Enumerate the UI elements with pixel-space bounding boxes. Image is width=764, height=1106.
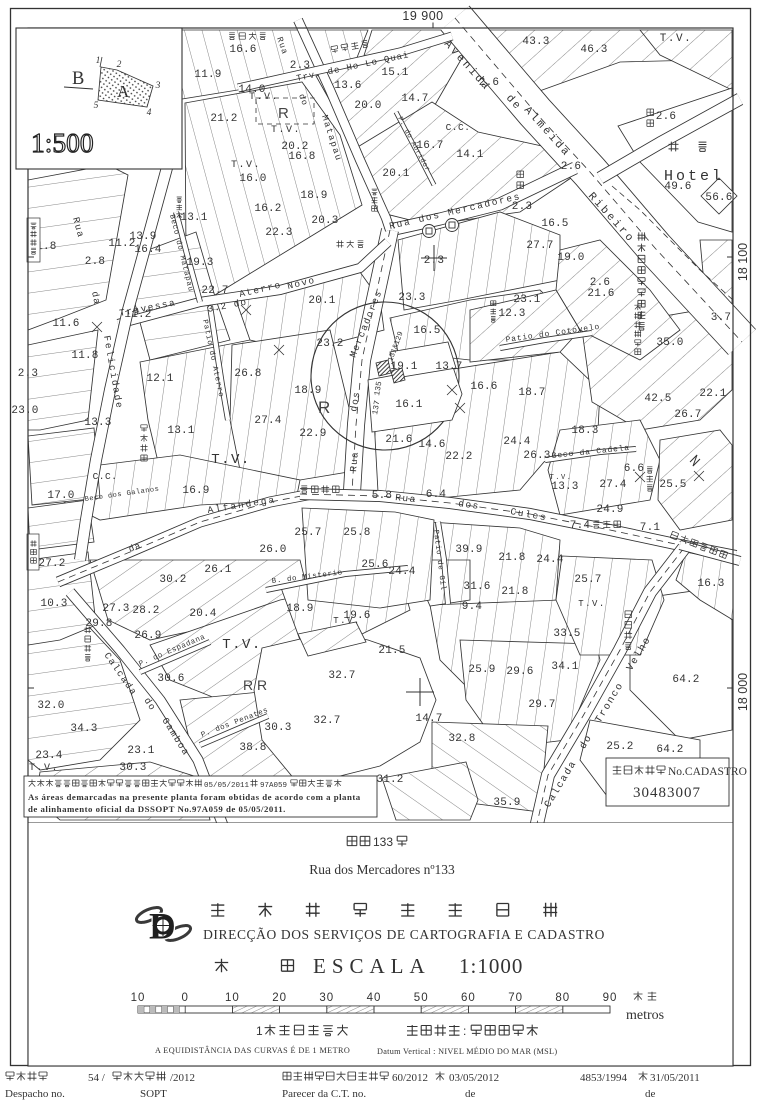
svg-text:16.8: 16.8 (288, 151, 315, 163)
svg-text:14.1: 14.1 (456, 149, 483, 161)
svg-text:13.3: 13.3 (84, 417, 111, 429)
svg-text:14.7: 14.7 (415, 713, 442, 725)
svg-text:54 /: 54 / (88, 1072, 106, 1084)
svg-text:No.CADASTRO: No.CADASTRO (668, 766, 747, 778)
svg-text:35.0: 35.0 (656, 337, 683, 349)
svg-text:ESCALA: ESCALA (313, 954, 431, 978)
svg-text:T.V.: T.V. (29, 763, 59, 774)
svg-text:32.7: 32.7 (313, 715, 340, 727)
svg-text:1:1000: 1:1000 (459, 954, 523, 978)
svg-text:05/05/2011: 05/05/2011 (204, 782, 250, 790)
svg-text:11.8: 11.8 (71, 350, 98, 362)
svg-text:18.9: 18.9 (300, 190, 327, 202)
svg-text:23.3: 23.3 (398, 292, 425, 304)
svg-text:19 900: 19 900 (402, 9, 443, 23)
svg-text::: : (463, 1024, 466, 1038)
svg-text:Datum Vertical : NIVEL MÉDIO D: Datum Vertical : NIVEL MÉDIO DO MAR (MSL… (377, 1046, 557, 1056)
svg-text:90: 90 (603, 992, 618, 1004)
svg-text:20: 20 (272, 992, 287, 1004)
svg-text:T.V.: T.V. (231, 160, 261, 171)
svg-text:3: 3 (155, 81, 161, 91)
svg-text:9.4: 9.4 (462, 601, 483, 613)
svg-text:31.6: 31.6 (463, 581, 490, 593)
svg-text:18.9: 18.9 (286, 603, 313, 615)
svg-text:T.V.: T.V. (333, 616, 361, 626)
svg-text:20.1: 20.1 (382, 168, 409, 180)
svg-text:22.7: 22.7 (201, 285, 228, 297)
svg-text:24.4: 24.4 (536, 554, 563, 566)
svg-text:38.8: 38.8 (239, 742, 266, 754)
svg-text:25.7: 25.7 (574, 574, 601, 586)
svg-text:6.6: 6.6 (624, 463, 644, 475)
svg-text:32.8: 32.8 (448, 733, 475, 745)
svg-text:13.1: 13.1 (167, 425, 194, 437)
svg-text:21.8: 21.8 (501, 586, 528, 598)
svg-text:39.9: 39.9 (455, 544, 482, 556)
svg-text:21.6: 21.6 (587, 288, 614, 300)
svg-text:C.C.: C.C. (93, 471, 118, 482)
svg-text:de: de (465, 1088, 476, 1100)
svg-text:2.8: 2.8 (85, 256, 105, 268)
svg-text:1:500: 1:500 (31, 127, 94, 158)
svg-text:3.7: 3.7 (711, 312, 731, 324)
svg-text:23.1: 23.1 (127, 745, 154, 757)
svg-text:T.V.: T.V. (249, 92, 279, 103)
svg-text:25.7: 25.7 (294, 527, 321, 539)
svg-text:16.5: 16.5 (413, 325, 440, 337)
svg-text:26.0: 26.0 (259, 544, 286, 556)
svg-text:15.1: 15.1 (381, 67, 408, 79)
svg-text:43.3: 43.3 (522, 36, 549, 48)
svg-text:30483007: 30483007 (633, 785, 701, 801)
svg-text:16.5: 16.5 (541, 218, 568, 230)
svg-text:2.3: 2.3 (290, 60, 310, 72)
svg-text:R: R (278, 105, 289, 122)
svg-text:22.1: 22.1 (699, 388, 726, 400)
svg-text:16.0: 16.0 (239, 173, 266, 185)
svg-text:12.1: 12.1 (146, 373, 173, 385)
svg-text:30.6: 30.6 (157, 673, 184, 685)
svg-text:Rua dos Mercadores nº133: Rua dos Mercadores nº133 (309, 862, 455, 877)
svg-text:B: B (72, 69, 84, 89)
svg-text:16.4: 16.4 (134, 244, 161, 256)
svg-text:18.7: 18.7 (518, 387, 545, 399)
svg-text:26.1: 26.1 (204, 564, 231, 576)
svg-text:13.6: 13.6 (334, 80, 361, 92)
svg-text:18.9: 18.9 (294, 385, 321, 397)
svg-text:24.4: 24.4 (503, 436, 530, 448)
svg-text:13.7: 13.7 (435, 361, 462, 373)
svg-text:26.8: 26.8 (234, 368, 261, 380)
svg-text:16.6: 16.6 (229, 44, 256, 56)
svg-text:T.V.: T.V. (271, 125, 301, 136)
svg-text:10.3: 10.3 (40, 598, 67, 610)
svg-text:19.3: 19.3 (186, 257, 213, 269)
svg-text:34.3: 34.3 (70, 723, 97, 735)
svg-text:32.7: 32.7 (328, 670, 355, 682)
svg-text:A EQUIDISTÂNCIA DAS CURVAS É D: A EQUIDISTÂNCIA DAS CURVAS É DE 1 METRO (155, 1045, 350, 1055)
svg-text:24.4: 24.4 (388, 566, 415, 578)
svg-text:64.2: 64.2 (656, 744, 683, 756)
svg-text:25.5: 25.5 (659, 479, 686, 491)
svg-text:2: 2 (117, 60, 122, 70)
svg-text:70: 70 (508, 992, 523, 1004)
svg-text:26.9: 26.9 (134, 630, 161, 642)
svg-text:13.3: 13.3 (551, 481, 578, 493)
svg-text:16.2: 16.2 (254, 203, 281, 215)
svg-text:28.2: 28.2 (132, 605, 159, 617)
svg-text:T.V.: T.V. (222, 637, 262, 653)
svg-text:33.5: 33.5 (553, 628, 580, 640)
svg-text:18 100: 18 100 (736, 243, 750, 281)
svg-text:25.2: 25.2 (606, 741, 633, 753)
svg-text:23.1: 23.1 (513, 294, 540, 306)
svg-text:27.4: 27.4 (254, 415, 281, 427)
svg-text:5.8: 5.8 (372, 490, 392, 502)
svg-text:R: R (318, 398, 330, 417)
svg-text:C.C.: C.C. (446, 122, 471, 133)
svg-text:22.2: 22.2 (445, 451, 472, 463)
svg-text:32.0: 32.0 (37, 700, 64, 712)
svg-text:SOPT: SOPT (140, 1088, 167, 1100)
svg-text:18.3: 18.3 (571, 425, 598, 437)
svg-text:6.4: 6.4 (426, 489, 447, 501)
svg-text:13.1: 13.1 (180, 212, 207, 224)
svg-text:40: 40 (367, 992, 382, 1004)
svg-text:2.6: 2.6 (656, 111, 676, 123)
svg-text:56.6: 56.6 (705, 192, 732, 204)
svg-text:03/05/2012: 03/05/2012 (449, 1072, 499, 1084)
svg-text:64.2: 64.2 (672, 674, 699, 686)
svg-text:2.3: 2.3 (424, 255, 444, 267)
svg-text:de: de (645, 1088, 656, 1100)
svg-text:60/2012: 60/2012 (392, 1072, 428, 1084)
svg-text:27.7: 27.7 (526, 240, 553, 252)
svg-text:12.3: 12.3 (498, 308, 525, 320)
svg-text:R R: R R (243, 677, 267, 693)
svg-text:34.1: 34.1 (551, 661, 578, 673)
svg-text:133: 133 (373, 835, 393, 849)
svg-text:T.V.: T.V. (578, 599, 606, 609)
svg-text:23.2: 23.2 (316, 338, 343, 350)
svg-text:10: 10 (131, 992, 146, 1004)
svg-text:Parecer da C.T. no.: Parecer da C.T. no. (282, 1088, 366, 1100)
svg-text:42.5: 42.5 (644, 393, 671, 405)
svg-text:21.5: 21.5 (378, 645, 405, 657)
svg-text:1: 1 (96, 56, 101, 66)
svg-text:25.8: 25.8 (343, 527, 370, 539)
svg-text:80: 80 (555, 992, 570, 1004)
svg-text:26.3: 26.3 (523, 450, 550, 462)
svg-text:60: 60 (461, 992, 476, 1004)
svg-text:25.6: 25.6 (361, 559, 388, 571)
svg-text:18 000: 18 000 (736, 673, 750, 711)
svg-text:T.V.: T.V. (550, 474, 573, 482)
svg-text:14.6: 14.6 (418, 439, 445, 451)
svg-text:20.4: 20.4 (189, 608, 216, 620)
svg-text:31.2: 31.2 (376, 774, 403, 786)
svg-text:16.3: 16.3 (697, 578, 724, 590)
svg-text:24.9: 24.9 (596, 504, 623, 516)
svg-text:20.3: 20.3 (311, 215, 338, 227)
svg-text:1: 1 (256, 1024, 263, 1038)
svg-text:20.0: 20.0 (354, 100, 381, 112)
svg-text:23.4: 23.4 (35, 750, 62, 762)
svg-text:metros: metros (626, 1008, 664, 1023)
svg-text:26.7: 26.7 (674, 409, 701, 421)
svg-text:10: 10 (225, 992, 240, 1004)
svg-text:16.9: 16.9 (182, 485, 209, 497)
svg-text:DIRECÇÃO DOS SERVIÇOS DE CARTO: DIRECÇÃO DOS SERVIÇOS DE CARTOGRAFIA E C… (203, 927, 605, 942)
svg-text:30.3: 30.3 (264, 722, 291, 734)
svg-text:4853/1994: 4853/1994 (580, 1072, 628, 1084)
svg-text:97A059: 97A059 (260, 782, 287, 790)
svg-text:30.3: 30.3 (119, 762, 146, 774)
svg-text:29.6: 29.6 (506, 666, 533, 678)
svg-text:7.1: 7.1 (640, 522, 661, 534)
svg-text:21.8: 21.8 (498, 552, 525, 564)
svg-text:/2012: /2012 (170, 1072, 195, 1084)
svg-text:19.1: 19.1 (390, 361, 417, 373)
svg-text:13.9: 13.9 (129, 231, 156, 243)
svg-text:35.9: 35.9 (493, 797, 520, 809)
svg-text:11.6: 11.6 (52, 318, 79, 330)
svg-text:27.4: 27.4 (599, 479, 626, 491)
svg-text:21.6: 21.6 (385, 434, 412, 446)
svg-text:A: A (117, 82, 130, 101)
svg-text:Rua: Rua (395, 492, 418, 505)
svg-text:16.6: 16.6 (470, 381, 497, 393)
svg-text:11.9: 11.9 (194, 69, 221, 81)
svg-text:22.9: 22.9 (299, 428, 326, 440)
svg-text:19.0: 19.0 (557, 252, 584, 264)
svg-text:0: 0 (181, 992, 188, 1004)
svg-text:2.6: 2.6 (561, 161, 581, 173)
svg-text:30.2: 30.2 (159, 574, 186, 586)
svg-text:27.3: 27.3 (102, 603, 129, 615)
svg-text:29.7: 29.7 (528, 699, 555, 711)
svg-text:30: 30 (319, 992, 334, 1004)
svg-text:46.3: 46.3 (580, 44, 607, 56)
svg-text:20.1: 20.1 (308, 295, 335, 307)
svg-text:Rua: Rua (348, 451, 361, 473)
svg-text:23.0: 23.0 (11, 405, 38, 417)
svg-text:27.2: 27.2 (38, 558, 65, 570)
svg-text:17.0: 17.0 (47, 490, 74, 502)
svg-text:7.4: 7.4 (570, 520, 591, 532)
svg-text:4: 4 (147, 108, 152, 118)
svg-text:2.6: 2.6 (590, 277, 610, 289)
svg-text:5: 5 (94, 101, 99, 111)
svg-text:As áreas demarcadas na present: As áreas demarcadas na presente planta f… (28, 792, 361, 802)
svg-text:T.V.: T.V. (211, 452, 251, 468)
svg-text:Hotel: Hotel (664, 168, 724, 185)
svg-text:16.1: 16.1 (395, 399, 422, 411)
svg-text:de alinhamento oficial da DSSO: de alinhamento oficial da DSSOPT No.97A0… (28, 804, 286, 814)
svg-text:14.7: 14.7 (401, 93, 428, 105)
svg-text:22.3: 22.3 (265, 227, 292, 239)
svg-text:25.9: 25.9 (468, 664, 495, 676)
svg-text:Despacho no.: Despacho no. (5, 1088, 65, 1100)
svg-text:21.2: 21.2 (210, 113, 237, 125)
svg-text:31/05/2011: 31/05/2011 (650, 1072, 700, 1084)
svg-text:T.V.: T.V. (660, 33, 692, 45)
svg-text:50: 50 (414, 992, 429, 1004)
